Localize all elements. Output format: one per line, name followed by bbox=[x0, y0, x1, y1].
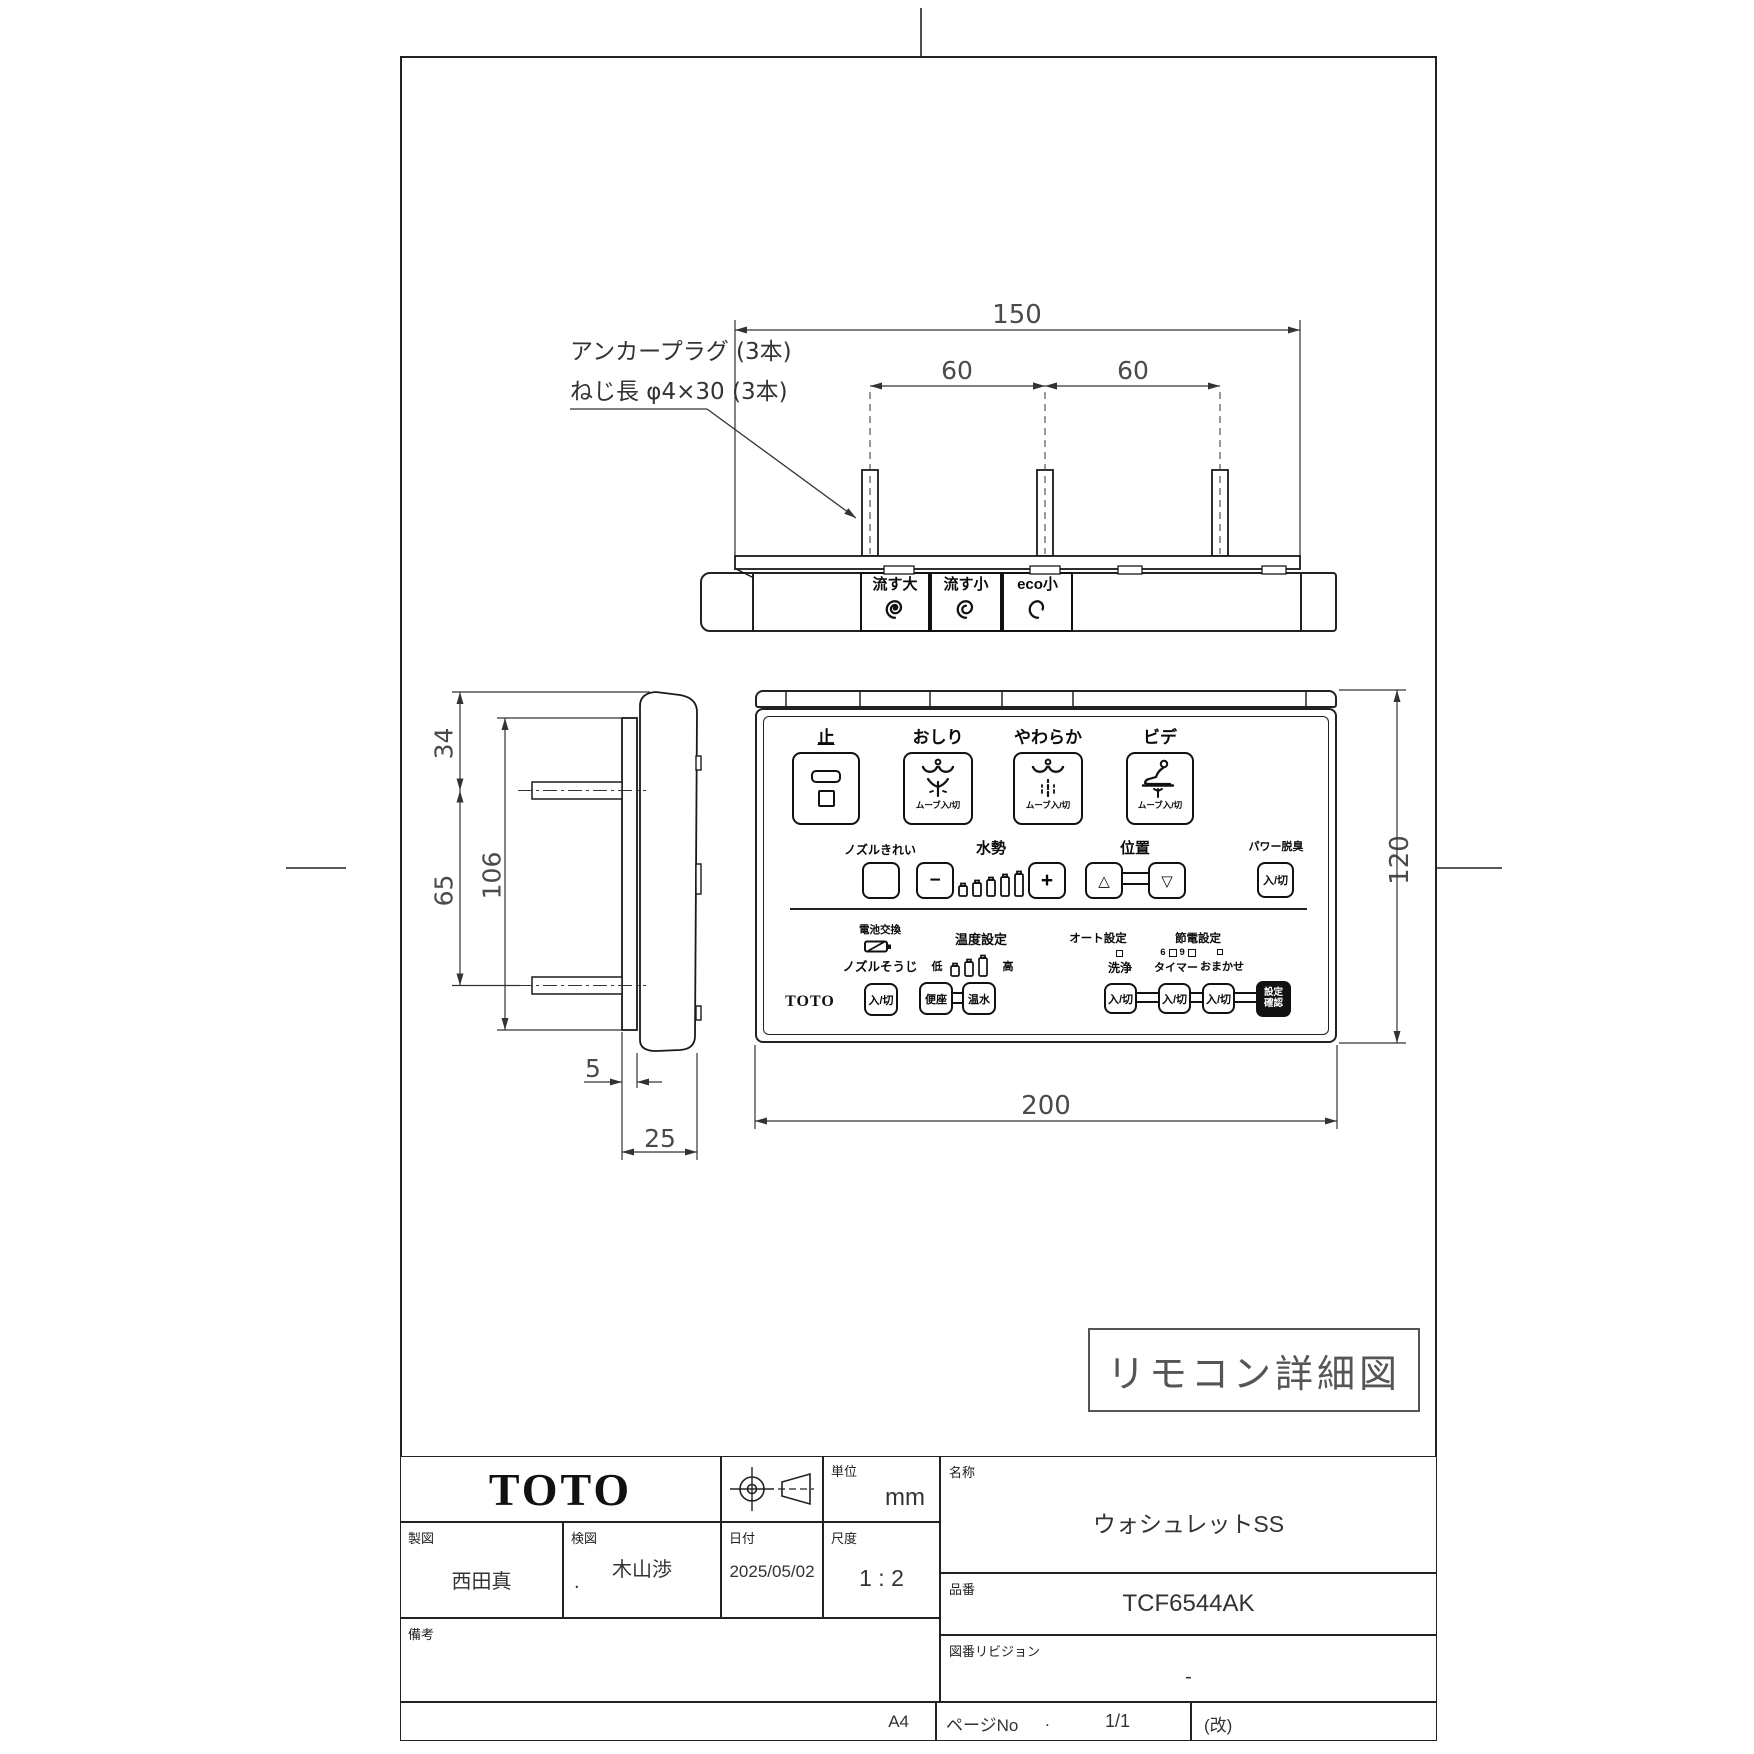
eco-nine-square bbox=[1188, 949, 1196, 957]
page-no-cell: ページNo . 1/1 bbox=[936, 1702, 1191, 1741]
oshiri-label: おしり bbox=[903, 729, 973, 747]
bide-move-onoff-label: ムーブ入/切 bbox=[1138, 801, 1182, 810]
checked-label: 検図 bbox=[571, 1528, 720, 1547]
flush-small-label: 流す小 bbox=[943, 577, 988, 593]
unit-cell: 単位 mm bbox=[823, 1456, 940, 1522]
nozzle-clean-button[interactable] bbox=[862, 862, 900, 899]
scale-label: 尺度 bbox=[831, 1528, 939, 1547]
part-number-cell: 品番 TCF6544AK bbox=[940, 1573, 1437, 1635]
omakase-label: おまかせ bbox=[1198, 962, 1246, 974]
drawing-sheet: アンカープラグ (3本) ねじ長 φ4×30 (3本) 150 60 60 流す… bbox=[0, 0, 1754, 1754]
position-down-button[interactable]: ▽ bbox=[1148, 862, 1186, 899]
water-plus-button[interactable]: + bbox=[1028, 862, 1066, 899]
dim-65-label: 65 bbox=[430, 863, 459, 919]
projection-symbol-cell bbox=[721, 1456, 823, 1522]
stop-button[interactable] bbox=[792, 752, 860, 825]
unit-value: mm bbox=[824, 1484, 925, 1512]
part-number-label: 品番 bbox=[949, 1579, 975, 1598]
timer-label: タイマー bbox=[1152, 963, 1200, 975]
toto-brand-mark: TOTO bbox=[780, 993, 840, 1011]
stop-label: 止 bbox=[796, 729, 856, 747]
stop-square-icon bbox=[818, 790, 835, 807]
wash-timer-connector bbox=[1136, 992, 1159, 1003]
nozzle-clean-label: ノズルきれい bbox=[840, 844, 920, 857]
toto-logo: TOTO bbox=[489, 1463, 632, 1516]
checked-cell: 検図 木山渉 . bbox=[563, 1522, 721, 1618]
nozzle-wash-label: ノズルそうじ bbox=[840, 961, 920, 974]
temp-setting-label: 温度設定 bbox=[945, 933, 1017, 947]
drafted-cell: 製図 西田真 bbox=[400, 1522, 563, 1618]
anchor-plug-note-line2: ねじ長 φ4×30 (3本) bbox=[570, 372, 810, 406]
remote-front-cap bbox=[755, 690, 1337, 708]
nozzle-wash-onoff-button[interactable]: 入/切 bbox=[864, 983, 898, 1016]
yawaraka-label: やわらか bbox=[1005, 729, 1091, 747]
paper-size-label: A4 bbox=[888, 1712, 909, 1732]
page-no-label: ページNo bbox=[946, 1711, 1018, 1736]
name-label: 名称 bbox=[949, 1462, 1436, 1481]
bide-button[interactable]: ムーブ入/切 bbox=[1126, 752, 1194, 825]
auto-indicator-square bbox=[1116, 950, 1123, 957]
unit-label: 単位 bbox=[831, 1461, 939, 1480]
third-angle-projection-icon bbox=[726, 1464, 818, 1514]
checked-value: 木山渉 bbox=[564, 1553, 720, 1582]
revision-cell: 図番リビジョン - bbox=[940, 1635, 1437, 1702]
date-cell: 日付 2025/05/02 bbox=[721, 1522, 823, 1618]
yawaraka-button[interactable]: ムーブ入/切 bbox=[1013, 752, 1083, 825]
dim-200-label: 200 bbox=[1014, 1091, 1078, 1121]
dim-25-label: 25 bbox=[638, 1124, 682, 1153]
temp-low-label: 低 bbox=[928, 962, 946, 974]
setting-confirm-button[interactable]: 設定 確認 bbox=[1256, 981, 1291, 1017]
date-label: 日付 bbox=[729, 1528, 822, 1547]
water-minus-button[interactable]: − bbox=[916, 862, 954, 899]
dim-5-label: 5 bbox=[578, 1054, 608, 1083]
temp-high-label: 高 bbox=[999, 962, 1017, 974]
eco-nine-label: 9 bbox=[1180, 948, 1185, 958]
strip-left-divider bbox=[752, 572, 754, 632]
page-no-dot: . bbox=[1045, 1711, 1050, 1731]
eco-setting-label: 節電設定 bbox=[1168, 933, 1228, 945]
bide-label: ビデ bbox=[1128, 729, 1192, 747]
battery-replace-icon bbox=[864, 939, 894, 954]
part-number-value: TCF6544AK bbox=[941, 1590, 1436, 1618]
yawaraka-move-onoff-label: ムーブ入/切 bbox=[1026, 801, 1070, 810]
drawing-stamp-text: リモコン詳細図 bbox=[1107, 1343, 1401, 1398]
flush-small-button[interactable]: 流す小 bbox=[930, 572, 1002, 632]
setting-confirm-line2: 確認 bbox=[1264, 999, 1283, 1010]
warm-water-button[interactable]: 温水 bbox=[962, 982, 996, 1015]
scale-cell: 尺度 1 : 2 bbox=[823, 1522, 940, 1618]
drawing-stamp: リモコン詳細図 bbox=[1088, 1328, 1420, 1412]
position-up-button[interactable]: △ bbox=[1085, 862, 1123, 899]
omakase-confirm-connector bbox=[1234, 992, 1257, 1003]
dim-120-label: 120 bbox=[1385, 832, 1415, 888]
power-deodorizer-onoff-button[interactable]: 入/切 bbox=[1257, 862, 1294, 898]
omakase-onoff-button[interactable]: 入/切 bbox=[1202, 983, 1235, 1014]
wash-label: 洗浄 bbox=[1098, 962, 1142, 975]
titleblock-logo-cell: TOTO bbox=[400, 1456, 721, 1522]
bide-icon bbox=[1138, 758, 1182, 800]
revision-mark-label: (改) bbox=[1204, 1711, 1232, 1736]
page-no-value: 1/1 bbox=[1105, 1711, 1130, 1732]
water-level-icon bbox=[958, 858, 1024, 900]
revision-value: - bbox=[941, 1666, 1436, 1689]
panel-separator-line bbox=[790, 908, 1307, 910]
anchor-plug-note-line1: アンカープラグ (3本) bbox=[570, 332, 810, 366]
water-power-label: 水勢 bbox=[951, 841, 1031, 857]
date-value: 2025/05/02 bbox=[728, 1561, 816, 1583]
temp-level-icon bbox=[950, 953, 996, 979]
auto-setting-label: オート設定 bbox=[1066, 933, 1130, 945]
dim-60-left-label: 60 bbox=[934, 356, 980, 385]
oshiri-icon bbox=[916, 758, 960, 800]
dim-60-right-label: 60 bbox=[1110, 356, 1156, 385]
drafted-value: 西田真 bbox=[401, 1565, 562, 1594]
revision-mark-cell: (改) bbox=[1191, 1702, 1437, 1741]
eco-six-label: 6 bbox=[1160, 948, 1165, 958]
scale-value: 1 : 2 bbox=[824, 1565, 939, 1592]
name-cell: 名称 ウォシュレットSS bbox=[940, 1456, 1437, 1573]
spiral-small-icon bbox=[951, 593, 981, 623]
name-value: ウォシュレットSS bbox=[941, 1505, 1436, 1539]
drafted-label: 製図 bbox=[408, 1528, 562, 1547]
paper-size-cell: A4 bbox=[400, 1702, 936, 1741]
spiral-large-icon bbox=[880, 593, 910, 623]
spiral-eco-icon bbox=[1023, 593, 1053, 623]
checked-dot: . bbox=[574, 1571, 580, 1594]
revision-label: 図番リビジョン bbox=[949, 1641, 1436, 1660]
yawaraka-icon bbox=[1026, 758, 1070, 800]
seat-button[interactable]: 便座 bbox=[919, 982, 953, 1015]
position-connector bbox=[1123, 872, 1148, 885]
flush-large-button[interactable]: 流す大 bbox=[860, 572, 930, 632]
power-deodorizer-label: パワー脱臭 bbox=[1238, 842, 1314, 854]
battery-replace-label: 電池交換 bbox=[848, 925, 912, 936]
strip-right-divider bbox=[1300, 572, 1302, 632]
omakase-indicator-square bbox=[1217, 949, 1223, 955]
dim-34-label: 34 bbox=[430, 716, 459, 772]
eco-six-square bbox=[1169, 949, 1177, 957]
wash-onoff-button[interactable]: 入/切 bbox=[1104, 983, 1137, 1014]
flush-eco-button[interactable]: eco小 bbox=[1002, 572, 1073, 632]
timer-onoff-button[interactable]: 入/切 bbox=[1158, 983, 1191, 1014]
oshiri-button[interactable]: ムーブ入/切 bbox=[903, 752, 973, 825]
notes-cell: 備考 bbox=[400, 1618, 940, 1702]
flush-large-label: 流す大 bbox=[872, 577, 917, 593]
flush-eco-label: eco小 bbox=[1017, 577, 1058, 593]
dim-106-label: 106 bbox=[478, 840, 507, 912]
eco-69-indicators: 6 9 bbox=[1150, 948, 1206, 958]
notes-label: 備考 bbox=[408, 1624, 939, 1643]
oshiri-move-onoff-label: ムーブ入/切 bbox=[916, 801, 960, 810]
stop-pill-icon bbox=[811, 770, 841, 783]
position-label: 位置 bbox=[1095, 841, 1175, 857]
dim-150-label: 150 bbox=[985, 300, 1049, 330]
